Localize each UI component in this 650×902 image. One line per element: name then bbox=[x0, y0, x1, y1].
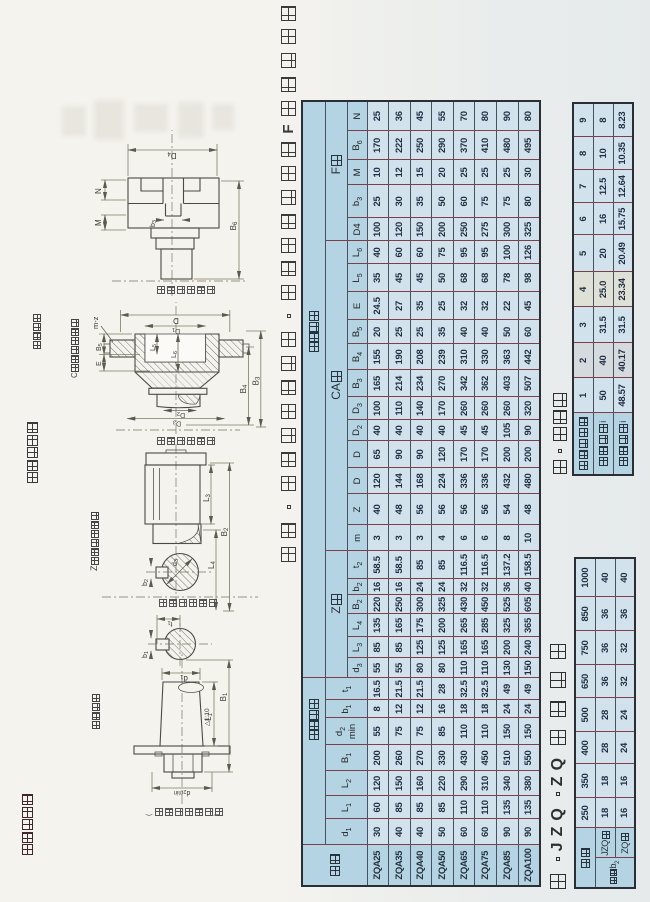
svg-text:D4: D4 bbox=[167, 150, 177, 160]
svg-text:D3: D3 bbox=[173, 419, 181, 427]
svg-text:b2: b2 bbox=[142, 579, 150, 586]
svg-text:L5: L5 bbox=[150, 344, 158, 351]
svg-text:B6: B6 bbox=[229, 221, 239, 230]
svg-text:B4: B4 bbox=[239, 384, 249, 393]
svg-text:E: E bbox=[96, 361, 103, 366]
svg-text:△1:10: △1:10 bbox=[204, 708, 211, 726]
svg-text:D1: D1 bbox=[172, 326, 180, 334]
svg-text:L4: L4 bbox=[207, 561, 217, 569]
svg-text:d2min: d2min bbox=[174, 788, 191, 796]
svg-text:D: D bbox=[173, 316, 179, 325]
svg-text:B1: B1 bbox=[219, 692, 229, 701]
svg-text:B5: B5 bbox=[96, 343, 104, 351]
svg-text:b1: b1 bbox=[142, 651, 150, 658]
svg-text:b3: b3 bbox=[150, 220, 158, 227]
svg-text:t1: t1 bbox=[167, 619, 172, 627]
svg-text:d3: d3 bbox=[172, 559, 180, 566]
svg-text:m-z: m-z bbox=[91, 316, 100, 329]
svg-text:D2: D2 bbox=[177, 410, 185, 418]
svg-text:B3: B3 bbox=[252, 376, 262, 385]
svg-text:L6: L6 bbox=[171, 351, 179, 358]
svg-text:N: N bbox=[94, 188, 103, 194]
svg-text:M: M bbox=[94, 219, 103, 226]
svg-text:L3: L3 bbox=[202, 493, 212, 501]
svg-text:B2: B2 bbox=[220, 527, 230, 536]
